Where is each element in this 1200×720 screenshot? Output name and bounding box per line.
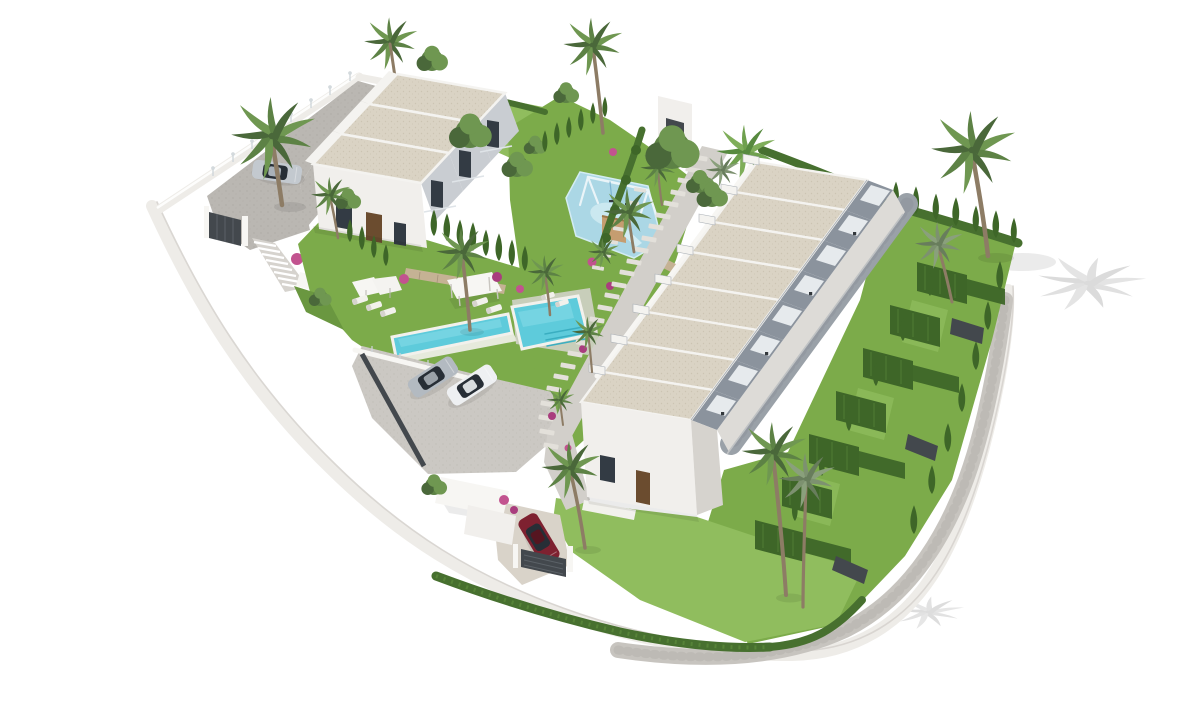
villa [305,16,545,252]
carport [421,474,518,545]
site-plan-render [0,0,1200,720]
render-canvas [0,0,1200,720]
entrance-bottom [421,474,573,585]
